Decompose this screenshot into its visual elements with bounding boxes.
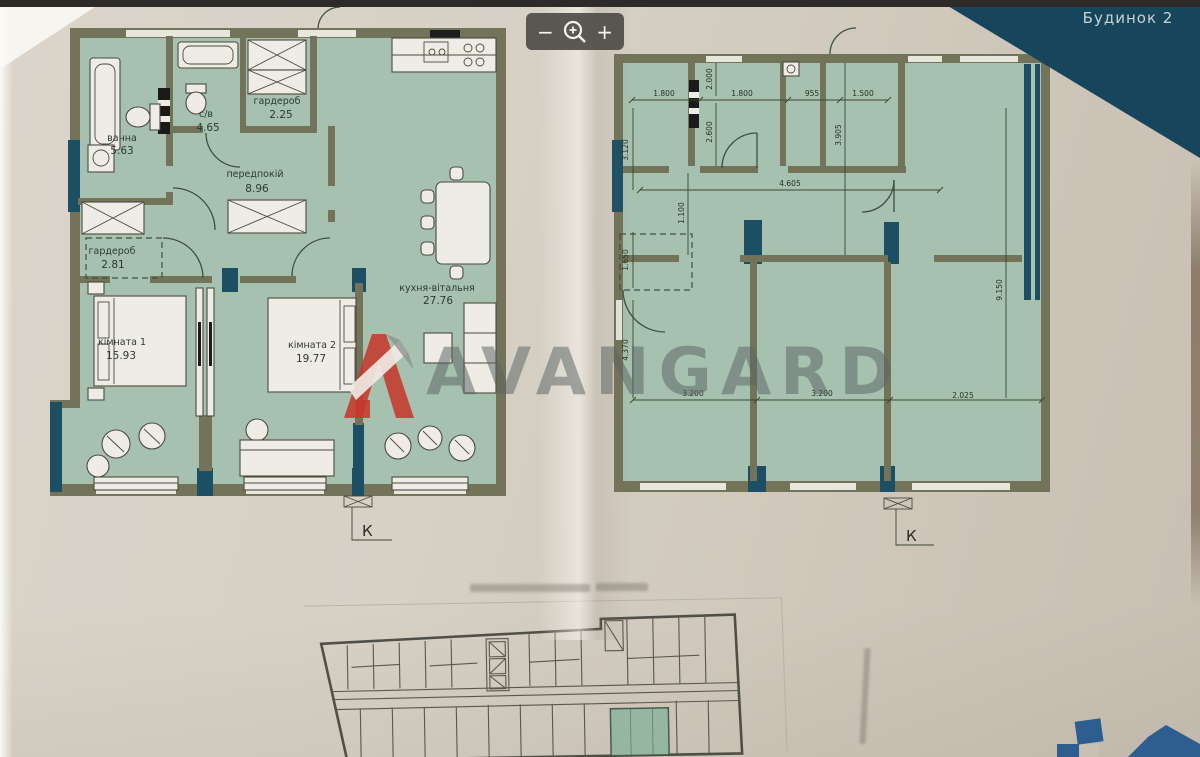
room-name: кімната 2: [288, 340, 336, 351]
dim: 9.150: [995, 279, 1004, 301]
section-letter: К: [906, 527, 917, 545]
room-area: 2.81: [101, 259, 124, 271]
dim: 1.800: [731, 89, 753, 98]
paper-edge-shadow: [1191, 160, 1200, 605]
room-name: передпокій: [226, 169, 283, 180]
room-area: 5.63: [110, 145, 133, 157]
magnifier-plus-icon: [562, 19, 588, 45]
room-name: с/в: [199, 109, 213, 120]
room-name: кімната 1: [98, 337, 146, 348]
section-mark-right: К: [884, 498, 934, 545]
dimensioned-plan: 1.800 1.800 955 1.500 3.120 1.650 4.370 …: [612, 28, 1050, 545]
viewer-stage: ванна 5.63 с/в 4.65 гардероб 2.25 передп…: [0, 0, 1200, 757]
section-mark-left: К: [344, 496, 392, 540]
room-name: кухня-вітальня: [399, 283, 475, 294]
dim: 1.500: [852, 89, 874, 98]
room-name: гардероб: [254, 96, 301, 107]
paper-edge-left: [0, 0, 13, 757]
section-letter: К: [362, 522, 373, 540]
corner-logo: [1057, 718, 1200, 757]
illegible-address-caption: [470, 584, 590, 592]
paper-fold-crease: [540, 0, 632, 640]
room-area: 19.77: [296, 353, 326, 365]
dim: 2.000: [705, 68, 714, 90]
dim: 4.605: [779, 179, 801, 188]
zoom-out-button[interactable]: −: [535, 22, 556, 42]
zoom-toolbar: − +: [526, 13, 624, 50]
dim: 955: [805, 89, 820, 98]
highlighted-unit: [610, 708, 669, 756]
zoom-in-button[interactable]: +: [594, 22, 615, 42]
dim: 2.025: [952, 391, 974, 400]
dim: 1.800: [653, 89, 675, 98]
room-area: 8.96: [245, 183, 269, 195]
illegible-address-caption: [596, 583, 648, 591]
room-area: 27.76: [423, 295, 453, 307]
dim: 2.600: [705, 121, 714, 143]
dim: 1.100: [677, 202, 686, 224]
dim: 3.905: [834, 124, 843, 146]
photo-top-strip: [0, 0, 1200, 7]
room-name: ванна: [107, 133, 137, 144]
zoom-reset-button[interactable]: [562, 19, 588, 45]
dim: 3.200: [811, 389, 833, 398]
room-area: 4.65: [196, 122, 219, 134]
room-area: 2.25: [269, 109, 292, 121]
room-area: 15.93: [106, 350, 136, 362]
furnished-plan: ванна 5.63 с/в 4.65 гардероб 2.25 передп…: [50, 7, 506, 540]
dim: 3.200: [682, 389, 704, 398]
room-name: гардероб: [89, 246, 136, 257]
building-label: Будинок 2: [1083, 9, 1174, 27]
